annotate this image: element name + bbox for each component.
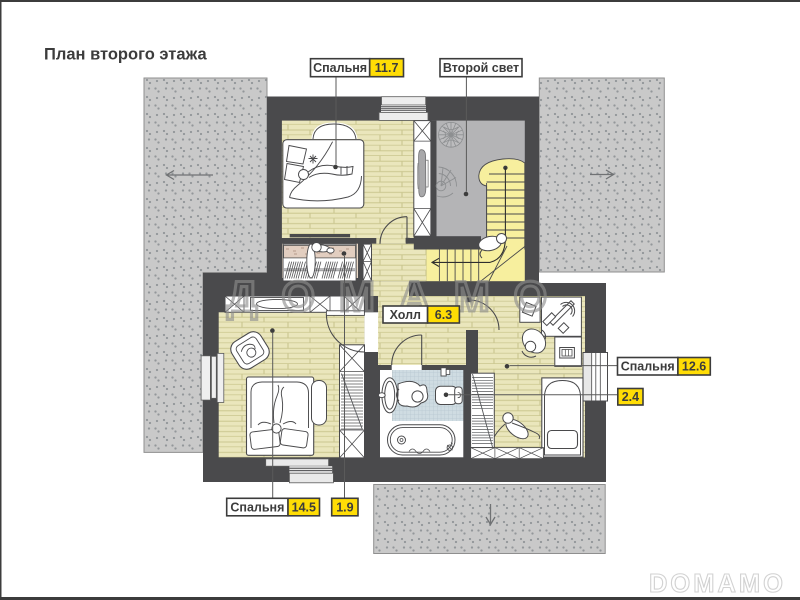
svg-text:14.5: 14.5: [292, 500, 316, 514]
svg-text:DOMAMO: DOMAMO: [649, 570, 786, 598]
svg-text:План второго этажа: План второго этажа: [44, 46, 207, 64]
svg-text:Спальня: Спальня: [230, 500, 284, 514]
svg-text:Второй свет: Второй свет: [443, 61, 519, 75]
svg-text:Холл: Холл: [390, 308, 421, 322]
svg-text:12.6: 12.6: [682, 360, 706, 374]
svg-text:6.3: 6.3: [435, 308, 452, 322]
svg-text:Спальня: Спальня: [313, 61, 367, 75]
svg-text:1.9: 1.9: [336, 500, 353, 514]
svg-text:Спальня: Спальня: [621, 360, 675, 374]
svg-text:2.4: 2.4: [622, 390, 639, 404]
svg-text:11.7: 11.7: [375, 61, 399, 75]
